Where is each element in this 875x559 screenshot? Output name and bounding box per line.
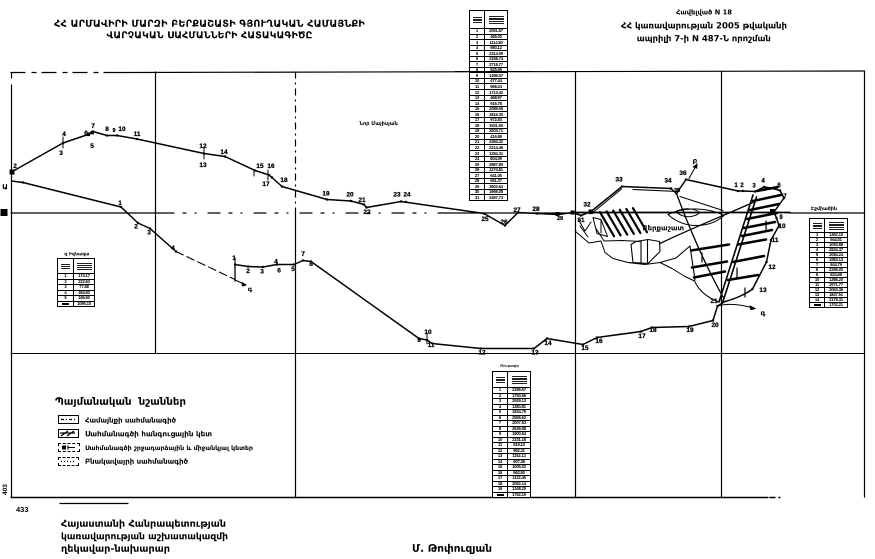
svg-text:5: 5 [291,266,295,273]
svg-text:19: 19 [322,191,330,198]
svg-text:14: 14 [220,149,228,156]
svg-text:11: 11 [428,342,435,349]
svg-text:28: 28 [532,206,540,213]
svg-text:29: 29 [557,216,563,222]
svg-text:7: 7 [91,123,95,130]
svg-text:26: 26 [500,219,508,226]
svg-text:15: 15 [256,163,264,170]
svg-text:20: 20 [711,322,719,329]
svg-text:24: 24 [403,192,411,199]
svg-text:9: 9 [417,337,421,344]
svg-text:6: 6 [84,130,88,137]
svg-text:8: 8 [105,126,109,133]
svg-text:25: 25 [481,216,489,223]
svg-text:33: 33 [615,177,623,184]
svg-text:10: 10 [118,126,126,133]
svg-text:9: 9 [779,215,783,221]
svg-text:13: 13 [531,350,539,357]
svg-text:11: 11 [772,237,779,244]
svg-text:34: 34 [664,178,672,185]
svg-text:433: 433 [16,505,29,514]
svg-text:7: 7 [301,251,305,258]
svg-text:3: 3 [59,150,63,157]
svg-text:3: 3 [752,184,756,190]
svg-text:13: 13 [759,287,767,294]
svg-text:3: 3 [260,269,264,276]
svg-text:3: 3 [147,230,151,237]
svg-text:11: 11 [134,131,141,138]
svg-text:27: 27 [513,207,521,214]
svg-text:2: 2 [134,224,138,231]
svg-text:8: 8 [309,261,313,268]
svg-text:21: 21 [710,298,718,305]
svg-text:15: 15 [581,345,589,352]
svg-text:19: 19 [686,327,694,334]
svg-text:7: 7 [783,194,787,200]
svg-text:1: 1 [232,255,236,262]
svg-text:4: 4 [761,179,765,185]
svg-text:6: 6 [277,268,281,275]
svg-text:12: 12 [768,264,776,271]
svg-text:31: 31 [577,217,585,224]
svg-text:16: 16 [595,338,603,345]
svg-text:17: 17 [638,333,646,340]
svg-text:20: 20 [346,192,354,199]
svg-text:35: 35 [674,188,680,194]
svg-text:36: 36 [679,170,687,177]
svg-text:2: 2 [13,163,17,170]
svg-text:13: 13 [199,162,207,169]
svg-text:10: 10 [424,329,432,336]
svg-text:16: 16 [267,163,275,170]
svg-text:9: 9 [112,128,115,134]
svg-text:5: 5 [90,143,94,150]
svg-text:2: 2 [740,183,744,189]
svg-text:18: 18 [280,177,288,184]
svg-text:2: 2 [246,268,250,275]
svg-text:12: 12 [199,143,207,150]
svg-text:32: 32 [583,202,591,209]
svg-text:23: 23 [393,192,401,199]
svg-text:21: 21 [358,197,366,204]
svg-text:12: 12 [478,350,486,357]
svg-text:6: 6 [777,183,781,189]
svg-text:17: 17 [262,181,270,188]
svg-text:4: 4 [274,259,278,266]
svg-text:18: 18 [649,327,657,334]
svg-text:10: 10 [778,223,786,230]
svg-text:1: 1 [734,183,738,189]
svg-text:403: 403 [2,484,9,495]
svg-text:4: 4 [62,131,66,138]
svg-text:22: 22 [363,209,371,216]
svg-text:14: 14 [544,340,552,347]
